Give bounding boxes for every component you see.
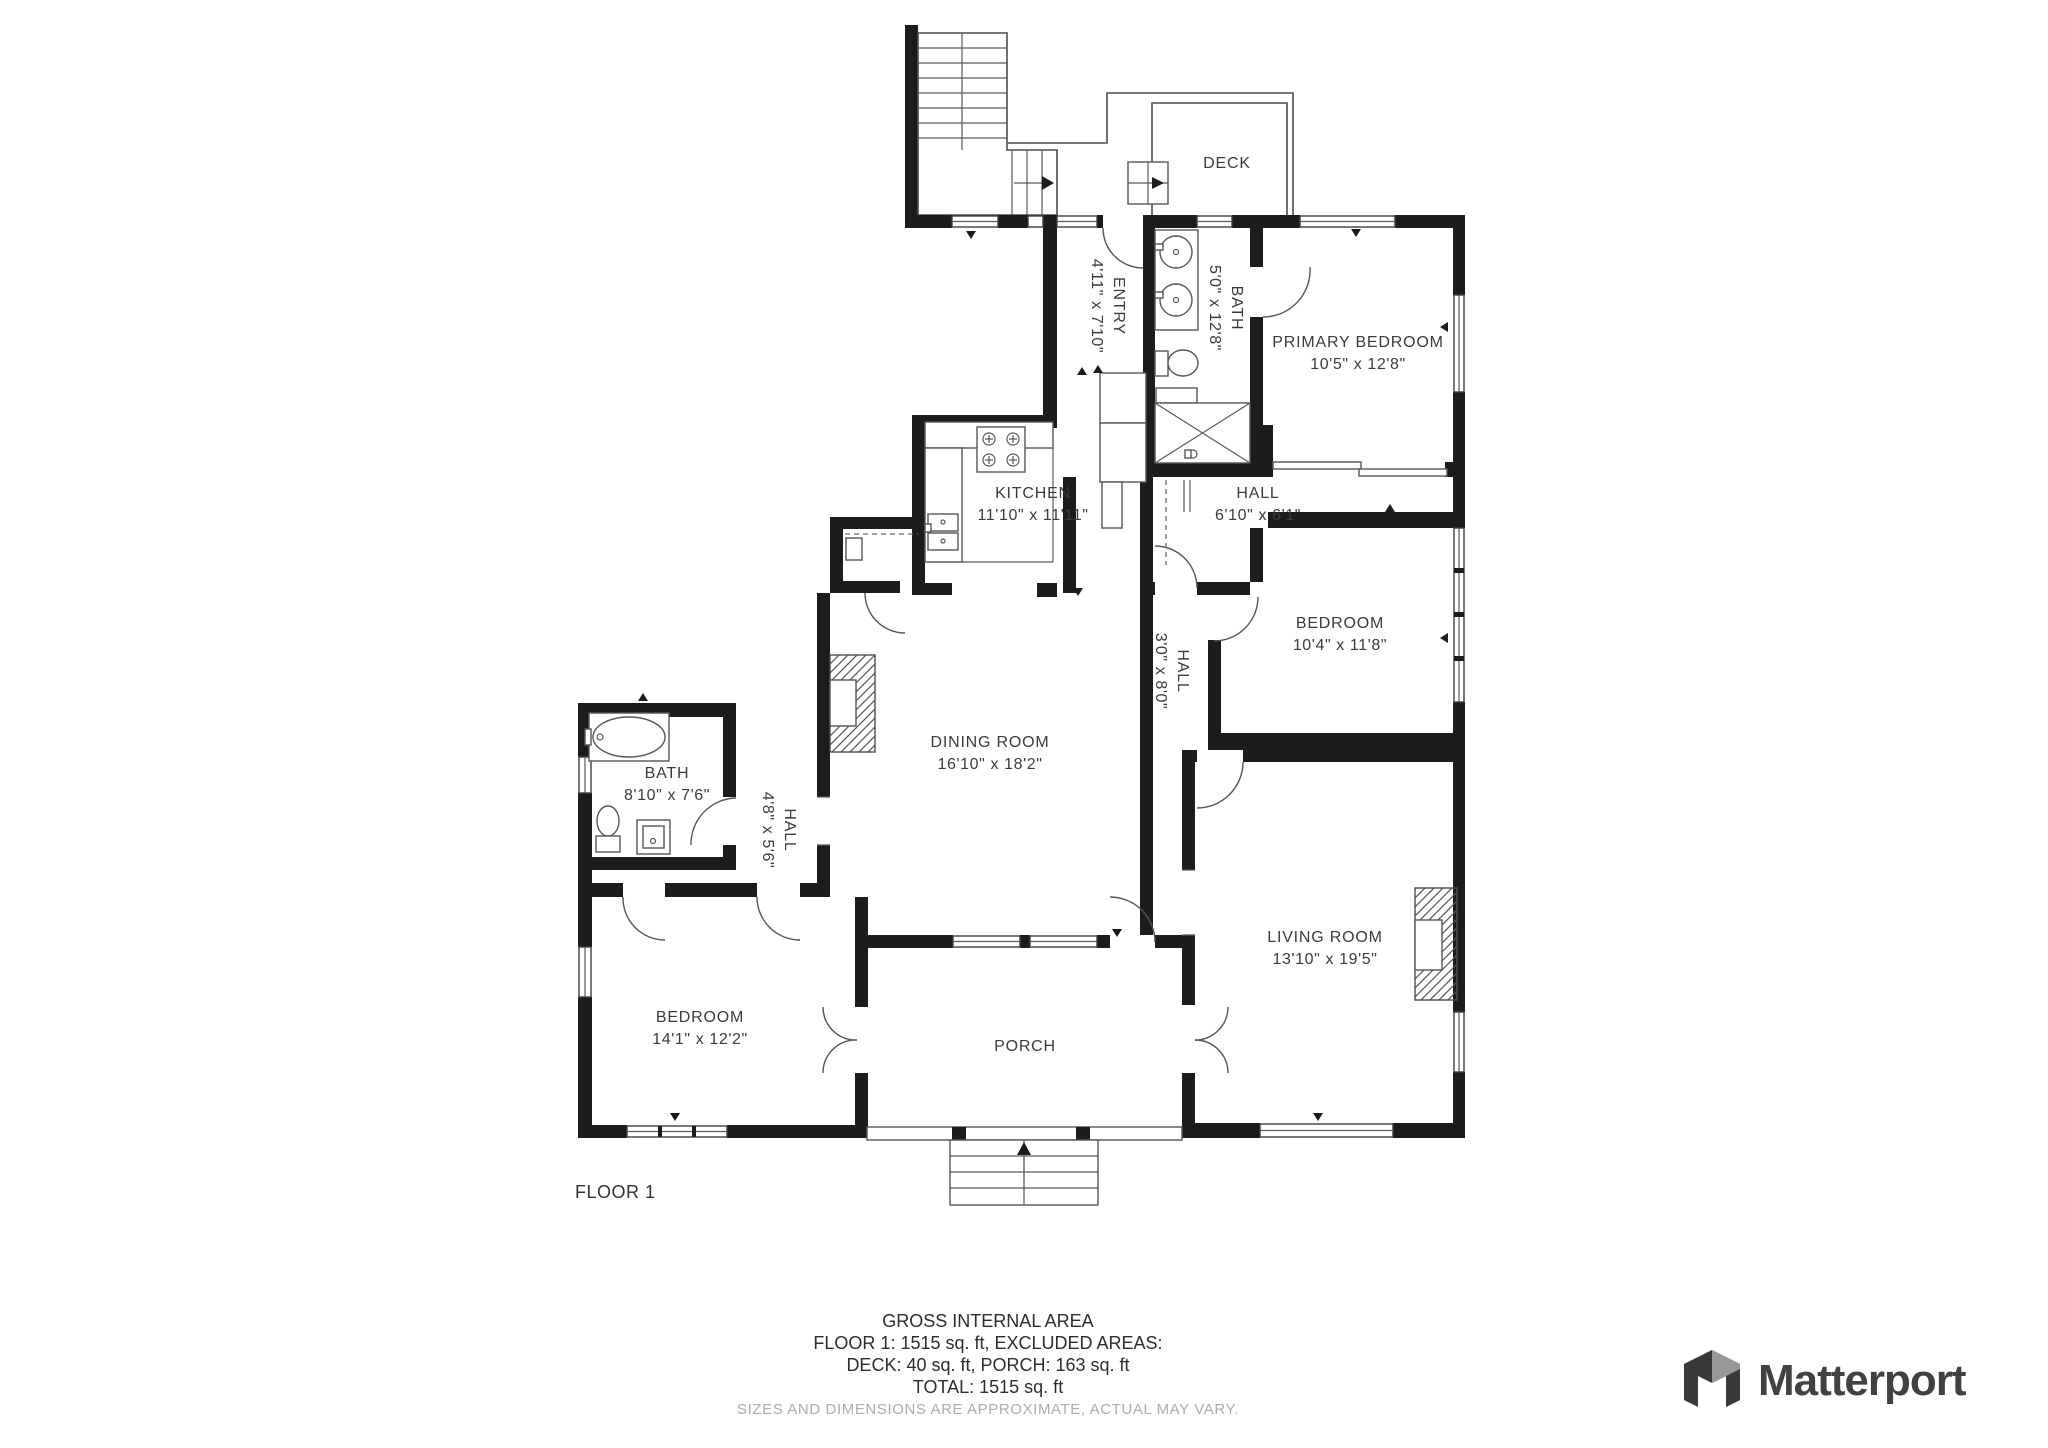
svg-text:HALL: HALL xyxy=(1174,649,1191,692)
window xyxy=(1030,936,1097,947)
window xyxy=(1454,528,1464,702)
floor-label: FLOOR 1 xyxy=(575,1182,656,1202)
fireplace-dining xyxy=(830,655,875,752)
room-label-hall-upper: HALL 6'10" x 6'1" xyxy=(1215,485,1301,524)
svg-text:10'4" x 11'8": 10'4" x 11'8" xyxy=(1293,637,1387,654)
kitchen-stove xyxy=(977,427,1025,472)
footer-summary: GROSS INTERNAL AREA FLOOR 1: 1515 sq. ft… xyxy=(737,1311,1239,1418)
matterport-wordmark: Matterport xyxy=(1758,1356,1966,1406)
footer-disclaimer: SIZES AND DIMENSIONS ARE APPROXIMATE, AC… xyxy=(737,1401,1239,1418)
svg-text:13'10" x 19'5": 13'10" x 19'5" xyxy=(1272,951,1377,968)
window xyxy=(952,216,998,227)
room-label-bath-left: BATH 8'10" x 7'6" xyxy=(624,765,710,804)
window xyxy=(1300,216,1395,227)
dining-nook xyxy=(845,534,918,560)
window xyxy=(1028,216,1043,227)
staircase xyxy=(905,25,1057,215)
svg-text:LIVING ROOM: LIVING ROOM xyxy=(1267,929,1382,946)
deck-outline xyxy=(1008,93,1293,215)
room-label-bedroom-left: BEDROOM 14'1" x 12'2" xyxy=(652,1009,748,1048)
primary-closet-doors xyxy=(1273,462,1447,476)
bath-left-fixtures xyxy=(585,713,670,854)
room-label-dining-room: DINING ROOM 16'10" x 18'2" xyxy=(930,734,1049,773)
room-label-hall-mid: HALL 3'0" x 8'0" xyxy=(1152,633,1191,710)
window xyxy=(1454,295,1464,392)
svg-text:4'11" x 7'10": 4'11" x 7'10" xyxy=(1088,259,1105,353)
svg-text:HALL: HALL xyxy=(781,808,798,851)
room-labels: DECK ENTRY 4'11" x 7'10" BATH 5'0" x 12'… xyxy=(624,155,1444,1055)
toilet-icon xyxy=(596,806,620,852)
room-label-deck: DECK xyxy=(1203,155,1251,172)
svg-text:PRIMARY BEDROOM: PRIMARY BEDROOM xyxy=(1272,334,1443,351)
svg-text:BATH: BATH xyxy=(1228,286,1245,331)
sink-icon xyxy=(1160,236,1192,268)
svg-text:6'10" x 6'1": 6'10" x 6'1" xyxy=(1215,507,1301,524)
matterport-logo: Matterport xyxy=(1680,1348,1966,1414)
bathtub xyxy=(585,713,669,761)
room-label-hall-left: HALL 4'8" x 5'6" xyxy=(759,792,798,869)
footer-line-4: TOTAL: 1515 sq. ft xyxy=(913,1377,1063,1397)
porch-structure xyxy=(867,1127,1182,1205)
svg-text:BEDROOM: BEDROOM xyxy=(656,1009,744,1026)
room-label-bedroom-right: BEDROOM 10'4" x 11'8" xyxy=(1293,615,1387,654)
svg-text:5'0" x 12'8": 5'0" x 12'8" xyxy=(1206,265,1223,351)
entry-closet xyxy=(1100,373,1146,528)
room-label-living-room: LIVING ROOM 13'10" x 19'5" xyxy=(1267,929,1382,968)
room-label-bath-upper: BATH 5'0" x 12'8" xyxy=(1206,265,1245,351)
toilet-icon xyxy=(1155,350,1198,376)
svg-text:10'5" x 12'8": 10'5" x 12'8" xyxy=(1310,356,1406,373)
shelf xyxy=(1156,388,1197,403)
svg-text:3'0" x 8'0": 3'0" x 8'0" xyxy=(1152,633,1169,710)
bath-upper-fixtures xyxy=(1155,230,1250,463)
room-label-porch: PORCH xyxy=(994,1038,1056,1055)
room-label-primary-bedroom: PRIMARY BEDROOM 10'5" x 12'8" xyxy=(1272,334,1443,373)
window xyxy=(1454,1012,1464,1072)
vanity-sink xyxy=(637,820,670,854)
fireplace-living xyxy=(1415,888,1457,1000)
walls xyxy=(578,215,1465,1138)
svg-text:HALL: HALL xyxy=(1236,485,1279,502)
matterport-mark-icon xyxy=(1680,1348,1744,1414)
window xyxy=(627,1126,727,1137)
window xyxy=(1057,216,1097,227)
footer-line-1: GROSS INTERNAL AREA xyxy=(882,1311,1093,1331)
sink-icon xyxy=(1160,284,1192,316)
window xyxy=(1260,1124,1393,1137)
svg-text:BEDROOM: BEDROOM xyxy=(1296,615,1384,632)
floor-plan-canvas: DECK ENTRY 4'11" x 7'10" BATH 5'0" x 12'… xyxy=(0,0,2048,1448)
window xyxy=(953,936,1020,947)
footer-line-2: FLOOR 1: 1515 sq. ft, EXCLUDED AREAS: xyxy=(813,1333,1162,1353)
svg-text:KITCHEN: KITCHEN xyxy=(995,485,1071,502)
svg-text:16'10" x 18'2": 16'10" x 18'2" xyxy=(937,756,1042,773)
svg-text:11'10" x 11'11": 11'10" x 11'11" xyxy=(978,507,1089,524)
svg-text:ENTRY: ENTRY xyxy=(1110,277,1127,335)
svg-text:DINING ROOM: DINING ROOM xyxy=(930,734,1049,751)
room-label-entry: ENTRY 4'11" x 7'10" xyxy=(1088,259,1127,353)
porch-edge xyxy=(867,1127,1182,1140)
svg-text:BATH: BATH xyxy=(645,765,690,782)
shower xyxy=(1155,403,1250,463)
window xyxy=(1197,216,1232,227)
footer-line-3: DECK: 40 sq. ft, PORCH: 163 sq. ft xyxy=(846,1355,1129,1375)
window xyxy=(579,757,591,793)
window xyxy=(579,947,591,997)
svg-text:14'1" x 12'2": 14'1" x 12'2" xyxy=(652,1031,748,1048)
svg-text:8'10" x 7'6": 8'10" x 7'6" xyxy=(624,787,710,804)
windows xyxy=(579,216,1464,1137)
svg-text:4'8" x 5'6": 4'8" x 5'6" xyxy=(759,792,776,869)
porch-steps xyxy=(950,1140,1098,1205)
